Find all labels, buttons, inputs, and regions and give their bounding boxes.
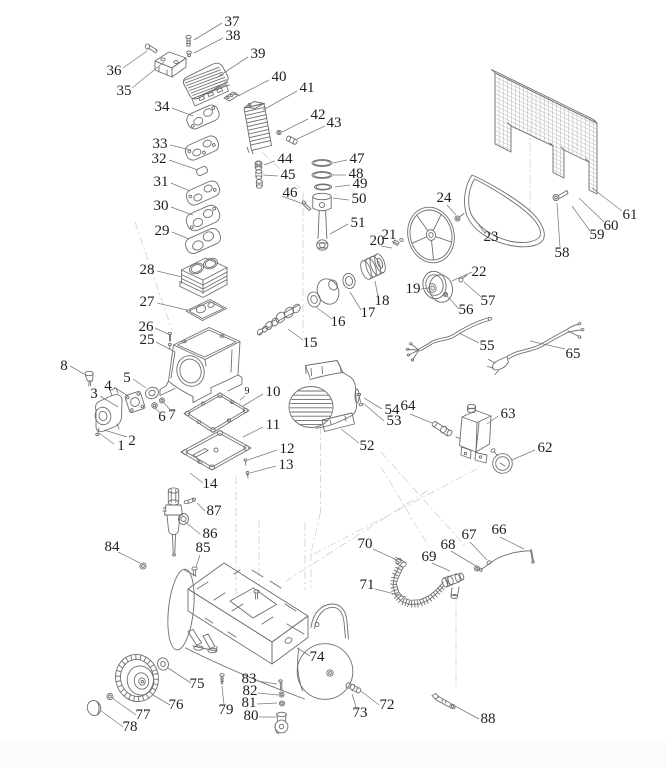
svg-text:36: 36 [107, 63, 123, 79]
svg-text:72: 72 [380, 697, 395, 713]
svg-text:34: 34 [155, 99, 171, 115]
svg-text:5: 5 [123, 370, 131, 386]
svg-text:24: 24 [437, 190, 453, 206]
svg-text:33: 33 [153, 136, 168, 152]
svg-text:22: 22 [472, 264, 487, 280]
svg-text:35: 35 [117, 83, 132, 99]
svg-text:14: 14 [203, 476, 219, 492]
svg-text:6: 6 [158, 409, 166, 425]
svg-text:63: 63 [501, 406, 516, 422]
svg-text:59: 59 [590, 227, 605, 243]
svg-text:65: 65 [566, 346, 581, 362]
svg-text:13: 13 [279, 457, 294, 473]
svg-text:40: 40 [272, 69, 287, 85]
svg-text:16: 16 [331, 314, 347, 330]
svg-text:53: 53 [387, 413, 402, 429]
svg-text:45: 45 [281, 167, 296, 183]
svg-text:78: 78 [123, 719, 138, 735]
svg-text:19: 19 [406, 281, 421, 297]
svg-text:69: 69 [422, 549, 437, 565]
svg-text:8: 8 [60, 358, 68, 374]
svg-text:3: 3 [90, 386, 98, 402]
svg-text:58: 58 [555, 245, 570, 261]
svg-text:87: 87 [207, 503, 223, 519]
svg-text:47: 47 [350, 151, 366, 167]
svg-text:15: 15 [303, 335, 318, 351]
svg-text:60: 60 [604, 218, 619, 234]
svg-text:29: 29 [155, 223, 170, 239]
svg-text:79: 79 [219, 702, 234, 718]
svg-text:67: 67 [462, 527, 478, 543]
svg-text:31: 31 [154, 174, 169, 190]
svg-text:30: 30 [154, 198, 169, 214]
svg-text:42: 42 [311, 107, 326, 123]
svg-text:57: 57 [481, 293, 497, 309]
svg-text:70: 70 [358, 536, 373, 552]
svg-text:80: 80 [244, 708, 259, 724]
svg-text:76: 76 [169, 697, 185, 713]
svg-text:77: 77 [136, 707, 152, 723]
svg-text:64: 64 [401, 398, 417, 414]
svg-text:52: 52 [360, 438, 375, 454]
svg-text:49: 49 [353, 176, 368, 192]
svg-text:28: 28 [140, 262, 155, 278]
svg-text:66: 66 [492, 522, 508, 538]
svg-text:84: 84 [105, 539, 121, 555]
svg-text:61: 61 [623, 207, 638, 223]
svg-text:11: 11 [266, 417, 280, 433]
svg-text:39: 39 [251, 46, 266, 62]
svg-text:18: 18 [375, 293, 390, 309]
svg-text:74: 74 [310, 649, 326, 665]
svg-text:71: 71 [360, 577, 375, 593]
svg-text:62: 62 [538, 440, 553, 456]
svg-text:17: 17 [361, 305, 377, 321]
svg-text:68: 68 [441, 537, 456, 553]
svg-text:50: 50 [352, 191, 367, 207]
svg-text:88: 88 [481, 711, 496, 727]
svg-text:43: 43 [327, 115, 342, 131]
svg-text:51: 51 [351, 215, 366, 231]
svg-text:27: 27 [140, 294, 156, 310]
svg-text:38: 38 [226, 28, 241, 44]
svg-text:41: 41 [300, 80, 315, 96]
svg-text:73: 73 [353, 705, 368, 721]
svg-text:44: 44 [278, 151, 294, 167]
svg-text:85: 85 [196, 540, 211, 556]
svg-text:10: 10 [266, 384, 281, 400]
svg-text:12: 12 [280, 441, 295, 457]
svg-text:46: 46 [283, 185, 299, 201]
svg-text:23: 23 [484, 229, 499, 245]
svg-text:1: 1 [117, 438, 125, 454]
svg-text:32: 32 [152, 151, 167, 167]
svg-text:25: 25 [140, 332, 155, 348]
svg-text:55: 55 [480, 338, 495, 354]
svg-text:75: 75 [190, 676, 205, 692]
svg-text:2: 2 [128, 433, 136, 449]
svg-text:9: 9 [245, 386, 250, 397]
svg-text:4: 4 [104, 378, 112, 394]
svg-text:56: 56 [459, 302, 475, 318]
